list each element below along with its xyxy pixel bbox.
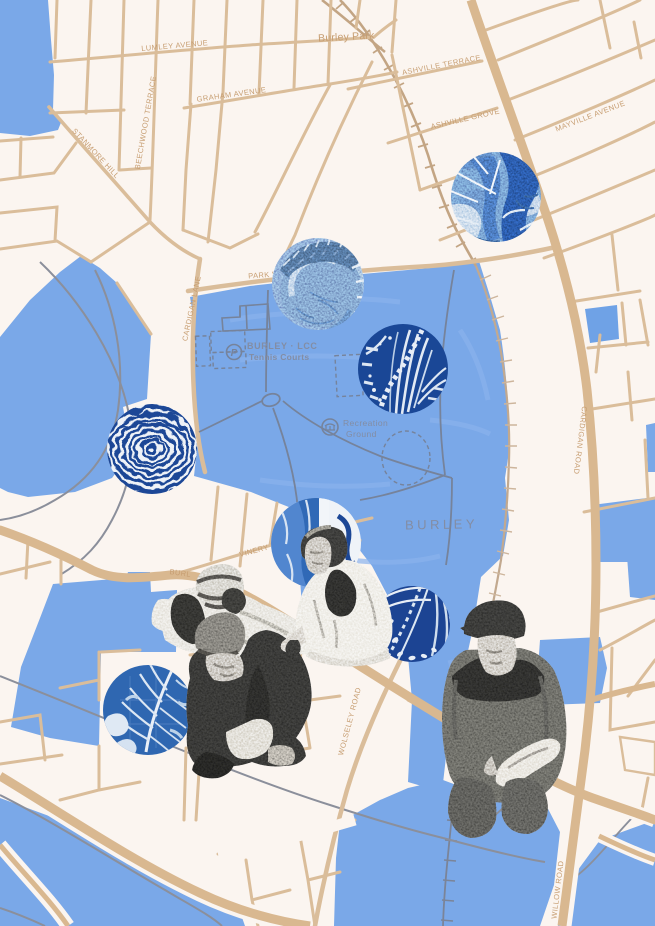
svg-text:Tennis Courts: Tennis Courts [249,352,309,362]
svg-text:BURLEY: BURLEY [405,516,478,532]
svg-text:Recreation: Recreation [343,418,388,428]
svg-text:Ground: Ground [346,429,377,439]
svg-text:BURLEY · LCC: BURLEY · LCC [247,341,318,351]
svg-text:P: P [231,348,238,359]
